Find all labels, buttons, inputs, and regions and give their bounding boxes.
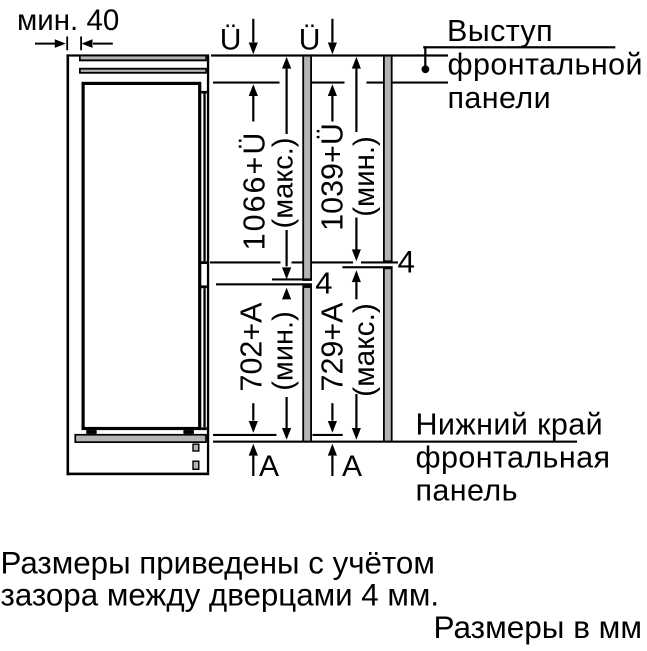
svg-text:Ü: Ü [220,24,242,57]
svg-text:1039+Ü: 1039+Ü [316,123,350,231]
svg-text:фронтальная: фронтальная [416,441,611,475]
svg-text:Нижний край: Нижний край [416,408,604,442]
svg-text:Выступ: Выступ [447,14,553,48]
svg-text:фронтальной: фронтальной [448,48,643,82]
svg-text:(мин.): (мин.) [268,311,300,391]
svg-text:(макс.): (макс.) [348,303,381,397]
svg-text:1066+Ü: 1066+Ü [238,131,272,251]
svg-text:(мин.): (мин.) [348,136,381,217]
svg-text:4: 4 [398,244,416,280]
svg-text:панели: панели [448,81,552,115]
svg-text:729+A: 729+A [316,302,350,392]
svg-text:A: A [259,450,279,483]
svg-text:Размеры в мм: Размеры в мм [434,609,642,645]
svg-text:702+A: 702+A [235,302,269,392]
svg-text:мин. 40: мин. 40 [17,4,119,37]
svg-text:4: 4 [315,265,332,300]
svg-text:зазора между дверцами 4 мм.: зазора между дверцами 4 мм. [1,578,440,613]
svg-text:A: A [342,450,362,483]
svg-text:панель: панель [416,474,518,508]
svg-text:Ü: Ü [299,24,321,57]
svg-text:(макс.): (макс.) [268,138,300,229]
svg-text:Размеры приведены с учётом: Размеры приведены с учётом [1,545,435,580]
